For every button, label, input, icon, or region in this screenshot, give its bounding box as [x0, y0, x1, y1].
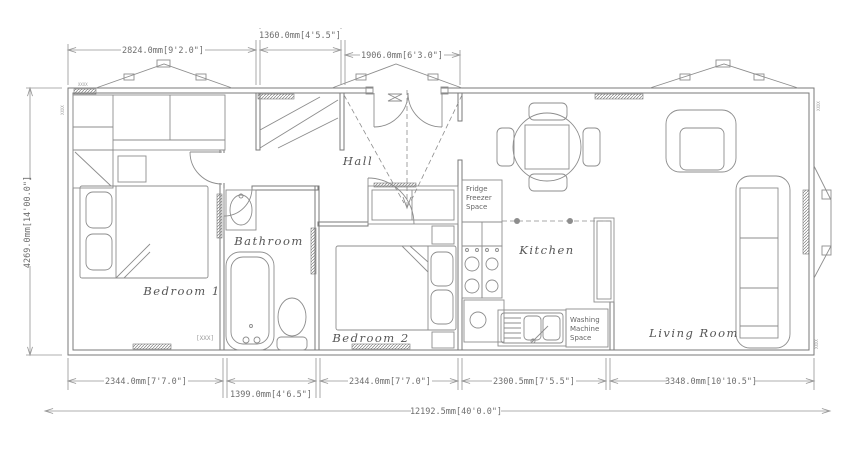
corner-tag-top-left-h: XXXX — [78, 82, 88, 87]
dim-top-2: 1360.0mm[4'5.5"] — [259, 31, 341, 41]
living-room-radiator — [803, 190, 809, 254]
window-tag: [XXX] — [196, 335, 214, 342]
label-living-room: Living Room — [648, 326, 739, 340]
bathroom-toilet — [277, 298, 307, 350]
kitchen-sink — [498, 310, 566, 346]
micro-annotations: [XXX] XXXX XXXX XXXX XXXX — [60, 82, 821, 349]
dim-bottom-4: 2300.5mm[7'5.5"] — [493, 377, 575, 387]
fridge-label-2: Freezer — [466, 194, 492, 202]
dim-top-1: 2824.0mm[9'2.0"] — [122, 46, 204, 56]
label-kitchen: Kitchen — [518, 243, 574, 257]
hall-cupboard — [368, 186, 458, 224]
dim-overall: 12192.5mm[40'0.0"] — [410, 407, 502, 417]
dim-top-3: 1906.0mm[6'3.0"] — [361, 51, 443, 61]
dim-bottom-5: 3348.0mm[10'10.5"] — [665, 377, 757, 387]
bay-window — [814, 166, 831, 278]
living-room-sofa-right — [736, 176, 790, 348]
dim-bottom-1: 2344.0mm[7'7.0"] — [105, 377, 187, 387]
label-bedroom2: Bedroom 2 — [331, 331, 409, 345]
corner-tag-top-right-v: XXXX — [816, 101, 821, 111]
bedroom1-window — [133, 344, 171, 349]
bedroom1-bedside-table — [118, 156, 146, 182]
dining-table-and-chairs — [497, 103, 600, 191]
label-bathroom: Bathroom — [233, 234, 304, 248]
floor-plan-drawing: 2824.0mm[9'2.0"] 1360.0mm[4'5.5"] 1906.0… — [0, 0, 862, 449]
floor-plan-canvas: 2824.0mm[9'2.0"] 1360.0mm[4'5.5"] 1906.0… — [0, 0, 862, 449]
bedroom1-wardrobe — [73, 95, 225, 150]
fridge-label-3: Space — [466, 203, 487, 211]
entrance-threshold-marker — [388, 94, 402, 101]
dim-bottom-3: 2344.0mm[7'7.0"] — [349, 377, 431, 387]
room-labels: Hall Bathroom Bedroom 1 Bedroom 2 Kitche… — [142, 154, 739, 345]
label-hall: Hall — [342, 154, 373, 168]
kitchen-divider — [502, 218, 612, 224]
washing-label-1: Washing — [570, 316, 600, 324]
outer-walls — [68, 86, 814, 355]
corner-tag-top-left-v: XXXX — [60, 105, 65, 115]
bathroom-bathtub — [226, 252, 274, 350]
fridge-label-1: Fridge — [466, 185, 488, 193]
bedroom1-closet — [73, 150, 113, 188]
dimension-lines — [26, 28, 830, 411]
hall-angled-shelf — [260, 97, 338, 148]
bedroom1-bed — [80, 186, 208, 278]
dim-bottom-2: 1399.0mm[4'6.5"] — [230, 390, 312, 400]
washing-label-3: Space — [570, 334, 591, 342]
bedroom1-door — [190, 152, 222, 184]
bathroom-radiator — [217, 194, 222, 238]
living-room-sofa-top — [666, 110, 736, 172]
bathroom-door — [224, 188, 252, 216]
dim-left: 4269.0mm[14'00.0"] — [23, 176, 33, 268]
bedroom2-radiator — [311, 228, 316, 274]
label-bedroom1: Bedroom 1 — [142, 284, 220, 298]
corner-tag-bottom-right-v: XXXX — [814, 339, 819, 349]
bedroom2-bed — [336, 246, 456, 330]
washing-label-2: Machine — [570, 325, 599, 333]
